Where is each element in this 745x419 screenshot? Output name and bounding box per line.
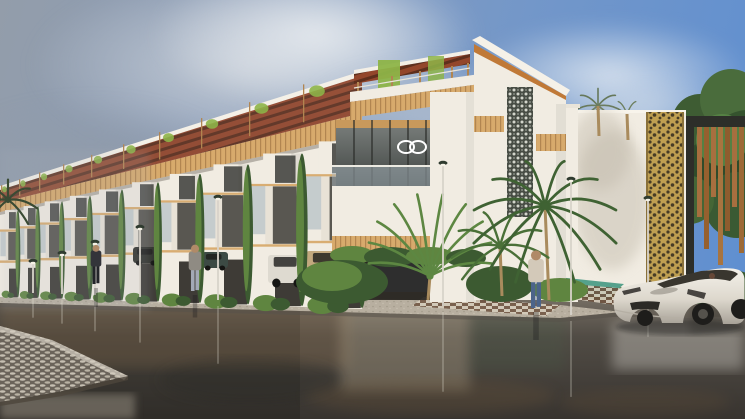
pergola-post bbox=[249, 102, 250, 136]
gate-beam bbox=[686, 116, 745, 127]
lamp-light bbox=[646, 199, 651, 201]
head bbox=[93, 245, 100, 252]
leg bbox=[191, 269, 195, 292]
palm-trunk bbox=[627, 114, 628, 140]
roof-planter bbox=[309, 85, 325, 97]
torso bbox=[189, 251, 202, 270]
lamp-reflection bbox=[217, 306, 218, 364]
lamp-light bbox=[569, 180, 574, 182]
person-reflection bbox=[533, 312, 539, 340]
leg bbox=[531, 280, 535, 308]
wheel bbox=[272, 279, 280, 288]
wheel bbox=[219, 265, 225, 270]
lamp-reflection bbox=[570, 321, 571, 397]
vertical-garden-panel bbox=[378, 60, 400, 90]
torso bbox=[91, 251, 102, 267]
roof-planter bbox=[254, 103, 268, 114]
lamp-pole bbox=[570, 180, 572, 315]
grille bbox=[630, 301, 660, 310]
palm-trunk bbox=[598, 106, 599, 136]
unit-upper-window bbox=[224, 166, 242, 191]
lamp-reflection bbox=[442, 312, 443, 392]
bush bbox=[220, 297, 237, 308]
gate-wood-slats bbox=[697, 127, 744, 265]
car-window bbox=[274, 257, 297, 267]
vertical-garden-panel bbox=[428, 56, 444, 82]
unit-window bbox=[222, 195, 243, 247]
lamp-pole bbox=[647, 199, 649, 283]
distance-haze bbox=[0, 150, 150, 310]
driver bbox=[709, 273, 715, 279]
bush bbox=[271, 298, 290, 311]
lamp-reflection bbox=[61, 300, 62, 324]
front-wheel bbox=[637, 310, 653, 326]
lamp-pole bbox=[217, 198, 219, 300]
unit-upper-window bbox=[179, 176, 195, 199]
leg bbox=[537, 280, 541, 307]
palm-frond bbox=[598, 95, 615, 106]
lamp-light bbox=[441, 164, 446, 166]
gate-post bbox=[686, 116, 694, 292]
person-reflection bbox=[193, 295, 198, 318]
head bbox=[191, 245, 199, 253]
slab-edge bbox=[200, 247, 248, 249]
leg bbox=[96, 265, 99, 283]
person-reflection bbox=[94, 288, 98, 307]
head bbox=[531, 250, 541, 260]
leg bbox=[195, 269, 199, 291]
palm-frond bbox=[581, 95, 598, 106]
unit-window bbox=[273, 186, 297, 243]
pergola-post bbox=[303, 84, 304, 122]
lattice-panel bbox=[507, 87, 533, 217]
unit-window bbox=[177, 203, 195, 250]
lamp-pole bbox=[32, 262, 34, 293]
puddle bbox=[305, 378, 555, 414]
lamp-light bbox=[216, 198, 221, 200]
slab-edge bbox=[248, 184, 302, 186]
car-window bbox=[206, 254, 222, 260]
slab-edge bbox=[158, 200, 200, 202]
puddle bbox=[560, 388, 730, 416]
slab-edge bbox=[200, 193, 248, 195]
slab-edge bbox=[248, 244, 302, 246]
unit-upper-window bbox=[275, 156, 296, 183]
lamp-reflection bbox=[139, 303, 140, 343]
roof-planter bbox=[206, 119, 218, 129]
roof-planter bbox=[163, 133, 174, 142]
lamp-light bbox=[60, 254, 65, 256]
architectural-render bbox=[0, 0, 745, 419]
pergola-post bbox=[159, 132, 160, 159]
lamp-pole bbox=[139, 228, 141, 297]
lamp-light bbox=[93, 243, 98, 245]
lamp-pole bbox=[442, 164, 444, 306]
leg bbox=[93, 265, 96, 284]
pergola-post bbox=[201, 118, 202, 148]
corner-building bbox=[296, 36, 588, 304]
bush bbox=[176, 296, 191, 306]
lamp-light bbox=[31, 262, 36, 264]
lamp-light bbox=[138, 228, 143, 230]
lamp-pole bbox=[61, 254, 63, 294]
wheel bbox=[205, 265, 211, 270]
gold-jali-panel bbox=[646, 112, 684, 292]
lamp-reflection bbox=[32, 299, 33, 318]
torso bbox=[528, 259, 544, 283]
